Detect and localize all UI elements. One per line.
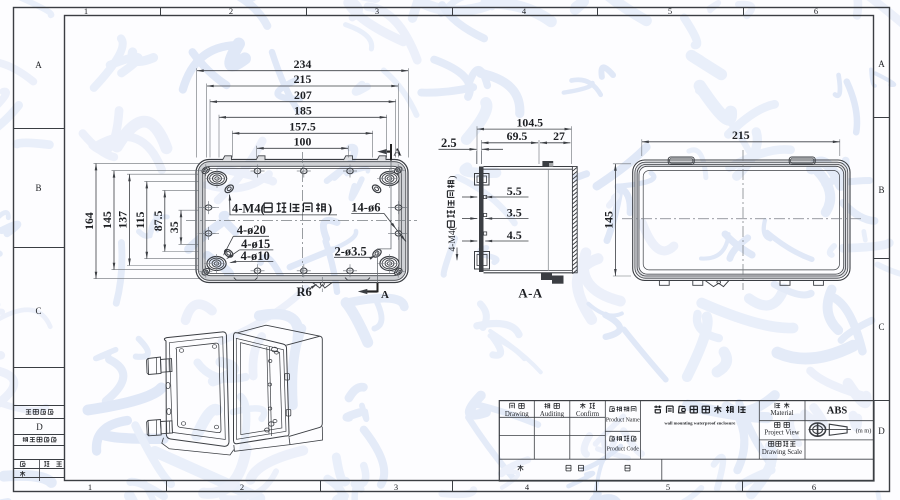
svg-text:157.5: 157.5 (289, 120, 316, 134)
svg-text:A: A (381, 289, 389, 301)
svg-text:4-M4(: 4-M4( (447, 227, 458, 251)
svg-text:215: 215 (294, 72, 312, 86)
svg-text:207: 207 (294, 88, 312, 102)
svg-text:4.5: 4.5 (507, 228, 522, 242)
svg-text:14-ø6: 14-ø6 (351, 201, 380, 215)
svg-text:69.5: 69.5 (507, 129, 528, 143)
svg-text:145: 145 (601, 211, 615, 229)
svg-text:1: 1 (84, 6, 88, 16)
svg-text:6: 6 (812, 482, 816, 492)
svg-text:5.5: 5.5 (507, 184, 522, 198)
svg-text:A-A: A-A (518, 287, 543, 301)
svg-text:Drawing Scale: Drawing Scale (762, 449, 802, 456)
svg-text:3: 3 (394, 482, 398, 492)
svg-text:Auditing: Auditing (540, 411, 565, 418)
svg-text:R6: R6 (297, 285, 312, 299)
svg-text:4-M4(: 4-M4( (232, 202, 265, 216)
svg-text:2: 2 (229, 6, 233, 16)
svg-text:215: 215 (732, 128, 750, 142)
svg-text:137: 137 (116, 211, 130, 229)
svg-text:2.5: 2.5 (441, 136, 457, 150)
svg-text:3.5: 3.5 (507, 206, 522, 220)
svg-text:35: 35 (167, 221, 181, 233)
svg-text:5: 5 (666, 482, 670, 492)
svg-text:Product Name: Product Name (606, 418, 640, 424)
svg-text:Material: Material (770, 410, 793, 417)
svg-text:B: B (35, 183, 41, 193)
svg-text:2: 2 (240, 482, 244, 492)
svg-text:27: 27 (553, 129, 565, 143)
svg-text:145: 145 (100, 211, 114, 229)
svg-text:ABS: ABS (827, 406, 848, 417)
svg-text:Drawing: Drawing (505, 411, 529, 418)
svg-text:A: A (878, 59, 885, 69)
svg-text:4-ø10: 4-ø10 (241, 249, 270, 263)
svg-text:5: 5 (668, 6, 672, 16)
svg-text:2-ø3.5: 2-ø3.5 (335, 245, 367, 259)
svg-text:Confirm: Confirm (576, 411, 600, 418)
svg-text:(m m): (m m) (856, 428, 872, 435)
svg-text:115: 115 (133, 211, 147, 228)
svg-text:100: 100 (294, 135, 312, 149)
svg-text:D: D (36, 422, 43, 432)
svg-text:): ) (328, 202, 332, 216)
svg-text:4-ø20: 4-ø20 (237, 223, 266, 237)
svg-text:C: C (35, 306, 41, 316)
svg-text:C: C (878, 322, 884, 332)
svg-text:Project View: Project View (764, 430, 799, 437)
svg-text:4: 4 (525, 482, 530, 492)
svg-text:wall mounting waterproof enclo: wall mounting waterproof enclosure (664, 421, 735, 426)
svg-text:164: 164 (82, 212, 96, 230)
svg-text:A: A (35, 60, 42, 70)
svg-text:104.5: 104.5 (517, 115, 544, 129)
svg-text:B: B (878, 185, 884, 195)
svg-text:D: D (878, 426, 885, 436)
svg-text:A: A (394, 147, 402, 159)
svg-text:234: 234 (294, 57, 312, 71)
svg-text:1: 1 (88, 482, 92, 492)
svg-text:): ) (447, 176, 458, 179)
svg-text:3: 3 (375, 6, 379, 16)
svg-text:6: 6 (814, 6, 818, 16)
svg-text:185: 185 (294, 104, 312, 118)
svg-text:87.5: 87.5 (151, 210, 165, 231)
svg-text:Product Code: Product Code (607, 447, 640, 453)
